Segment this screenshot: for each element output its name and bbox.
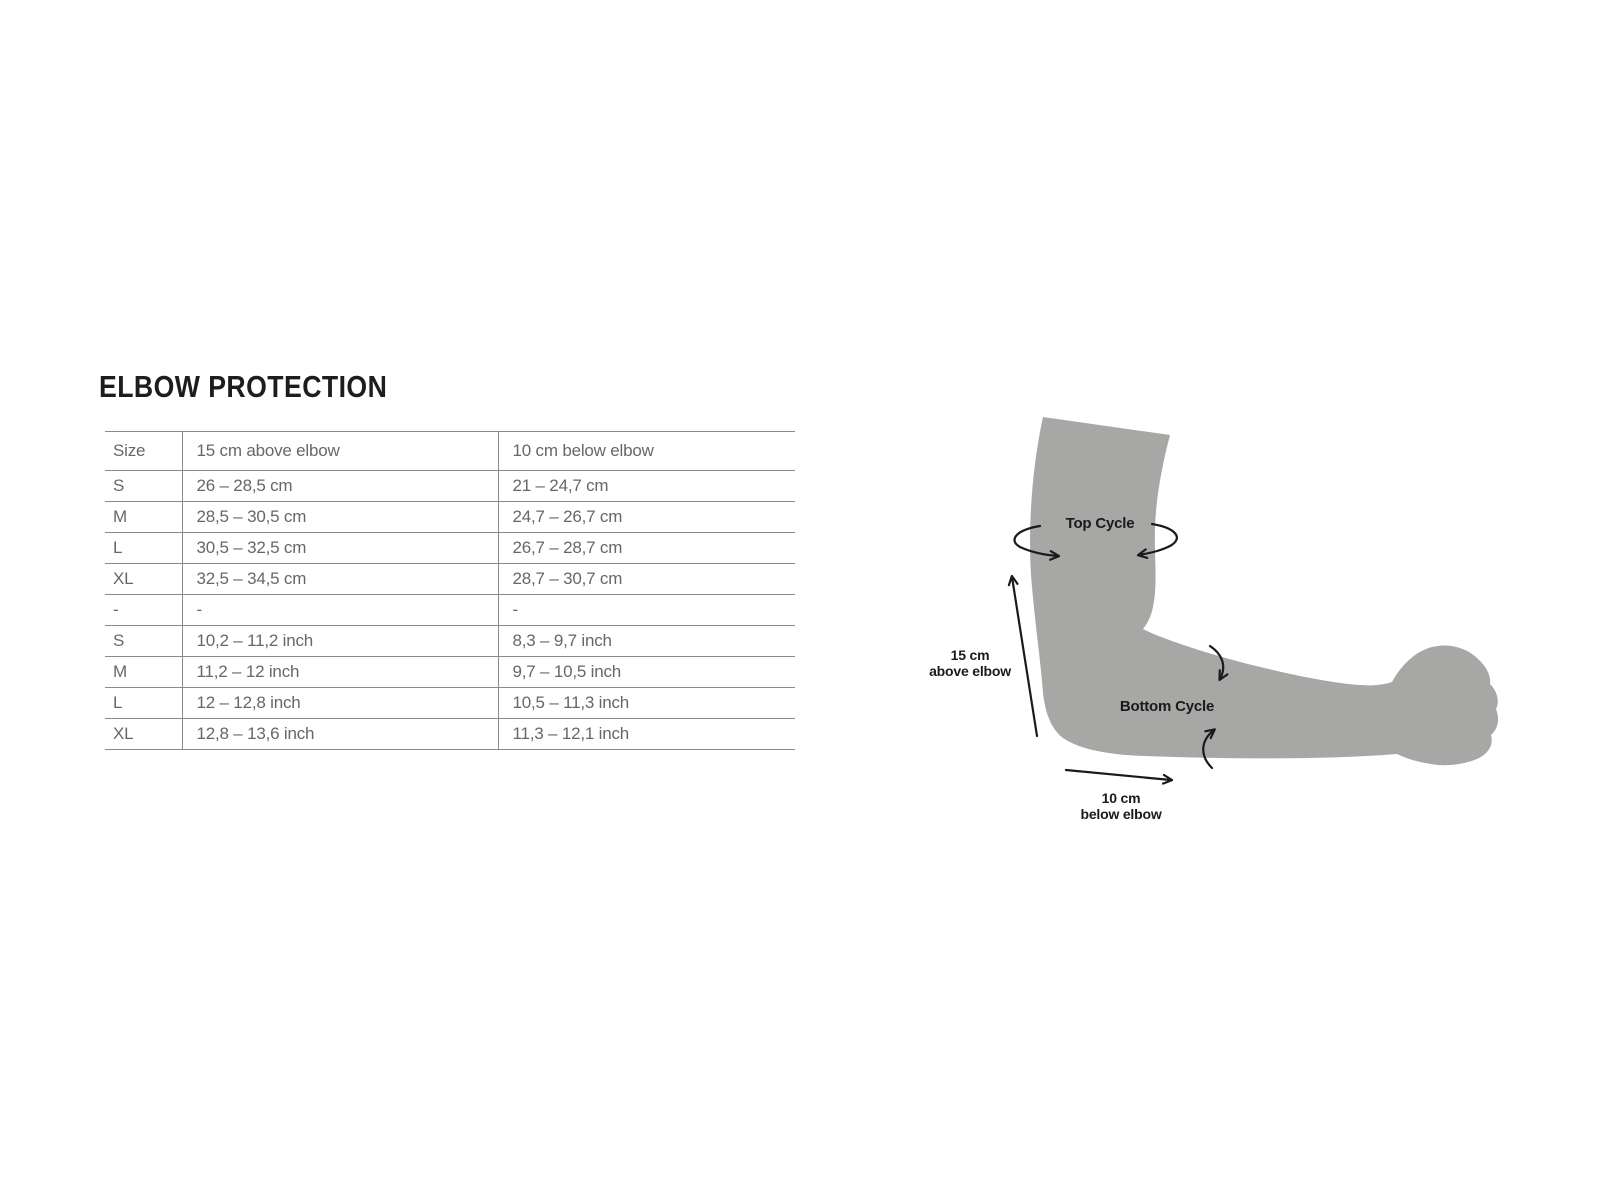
cell-above: 28,5 – 30,5 cm bbox=[182, 502, 498, 533]
cell-below: 9,7 – 10,5 inch bbox=[498, 657, 795, 688]
size-table: Size 15 cm above elbow 10 cm below elbow… bbox=[105, 431, 795, 750]
cell-size: XL bbox=[105, 564, 182, 595]
cell-above: 10,2 – 11,2 inch bbox=[182, 626, 498, 657]
column-header-below-elbow: 10 cm below elbow bbox=[498, 432, 795, 471]
cell-below: 24,7 – 26,7 cm bbox=[498, 502, 795, 533]
table-row: L 12 – 12,8 inch 10,5 – 11,3 inch bbox=[105, 688, 795, 719]
table-row: XL 32,5 – 34,5 cm 28,7 – 30,7 cm bbox=[105, 564, 795, 595]
table-row: M 28,5 – 30,5 cm 24,7 – 26,7 cm bbox=[105, 502, 795, 533]
cell-size: S bbox=[105, 626, 182, 657]
cell-above: 26 – 28,5 cm bbox=[182, 471, 498, 502]
cell-below: 11,3 – 12,1 inch bbox=[498, 719, 795, 750]
cell-below: 8,3 – 9,7 inch bbox=[498, 626, 795, 657]
cell-below: 21 – 24,7 cm bbox=[498, 471, 795, 502]
table-row: XL 12,8 – 13,6 inch 11,3 – 12,1 inch bbox=[105, 719, 795, 750]
above-elbow-label-line2: above elbow bbox=[929, 663, 1011, 679]
bottom-cycle-label: Bottom Cycle bbox=[1120, 698, 1214, 715]
arm-measurement-diagram: Top Cycle Bottom Cycle 15 cm above elbow… bbox=[900, 380, 1540, 840]
below-elbow-measure-arrow bbox=[1066, 770, 1171, 780]
top-cycle-label: Top Cycle bbox=[1066, 515, 1135, 532]
below-elbow-label-line1: 10 cm bbox=[1102, 790, 1141, 806]
cell-below: 28,7 – 30,7 cm bbox=[498, 564, 795, 595]
cell-above: 32,5 – 34,5 cm bbox=[182, 564, 498, 595]
cell-above: 11,2 – 12 inch bbox=[182, 657, 498, 688]
table-header-row: Size 15 cm above elbow 10 cm below elbow bbox=[105, 432, 795, 471]
cell-above: 12,8 – 13,6 inch bbox=[182, 719, 498, 750]
cell-below: 26,7 – 28,7 cm bbox=[498, 533, 795, 564]
cell-size: S bbox=[105, 471, 182, 502]
table-row-separator: - - - bbox=[105, 595, 795, 626]
cell-above: 30,5 – 32,5 cm bbox=[182, 533, 498, 564]
cell-size: M bbox=[105, 657, 182, 688]
column-header-above-elbow: 15 cm above elbow bbox=[182, 432, 498, 471]
cell-below: 10,5 – 11,3 inch bbox=[498, 688, 795, 719]
cell-below: - bbox=[498, 595, 795, 626]
above-elbow-label-line1: 15 cm bbox=[951, 647, 990, 663]
page-title: ELBOW PROTECTION bbox=[99, 369, 387, 405]
table-row: L 30,5 – 32,5 cm 26,7 – 28,7 cm bbox=[105, 533, 795, 564]
column-header-size: Size bbox=[105, 432, 182, 471]
arm-silhouette bbox=[1030, 417, 1498, 765]
table-row: M 11,2 – 12 inch 9,7 – 10,5 inch bbox=[105, 657, 795, 688]
cell-size: - bbox=[105, 595, 182, 626]
table-row: S 10,2 – 11,2 inch 8,3 – 9,7 inch bbox=[105, 626, 795, 657]
cell-above: - bbox=[182, 595, 498, 626]
cell-size: M bbox=[105, 502, 182, 533]
size-chart-page: ELBOW PROTECTION Size 15 cm above elbow … bbox=[0, 0, 1600, 1200]
cell-above: 12 – 12,8 inch bbox=[182, 688, 498, 719]
above-elbow-measure-arrow bbox=[1012, 577, 1037, 736]
table-row: S 26 – 28,5 cm 21 – 24,7 cm bbox=[105, 471, 795, 502]
below-elbow-label-line2: below elbow bbox=[1080, 806, 1161, 822]
cell-size: L bbox=[105, 533, 182, 564]
cell-size: XL bbox=[105, 719, 182, 750]
cell-size: L bbox=[105, 688, 182, 719]
